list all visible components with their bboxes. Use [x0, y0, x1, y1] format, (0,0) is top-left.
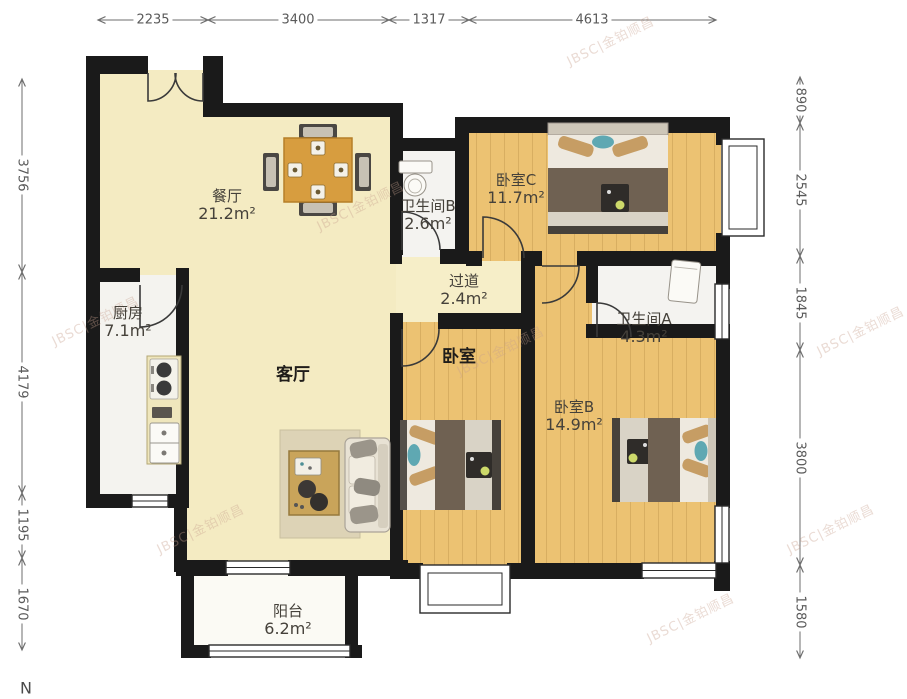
room-name: 餐厅 — [198, 188, 256, 205]
bed-middle-bedroom-icon — [400, 420, 501, 510]
room-label-balcony: 阳台 6.2m² — [264, 603, 311, 639]
dim-top-2: 3400 — [278, 13, 317, 28]
room-label-bathroom-b: 卫生间B 2.6m² — [400, 198, 455, 234]
room-label-bedroom: 卧室 — [442, 348, 476, 368]
balcony-window-icon — [209, 645, 350, 657]
room-area: 2.6m² — [400, 215, 455, 233]
washing-machine-icon — [668, 260, 701, 304]
dim-top-1: 2235 — [133, 13, 172, 28]
bedroom-b-side-window-icon — [715, 506, 729, 563]
bed-bedroom-c-icon — [548, 123, 668, 234]
room-area: 21.2m² — [198, 205, 256, 223]
dim-left-4: 1670 — [15, 584, 30, 623]
bedroom-b-bottom-window-icon — [642, 563, 716, 578]
room-name: 阳台 — [264, 603, 311, 620]
bed-bedroom-b-icon — [612, 418, 716, 502]
dim-right-1: 890 — [793, 85, 808, 116]
middle-bedroom-bay-window-icon — [420, 565, 510, 613]
room-name: 卫生间B — [400, 198, 455, 215]
bedroom-c-bay-window-icon — [722, 139, 764, 236]
room-name: 卧室 — [442, 348, 476, 368]
room-area: 4.3m² — [616, 328, 671, 346]
north-indicator: N — [20, 679, 32, 698]
room-label-living: 客厅 — [276, 366, 310, 386]
room-area: 2.4m² — [440, 290, 487, 308]
coffee-table-icon — [289, 451, 339, 515]
room-label-dining: 餐厅 21.2m² — [198, 188, 256, 224]
room-label-bedroom-b: 卧室B 14.9m² — [545, 399, 603, 435]
dim-right-3: 1845 — [793, 283, 808, 322]
room-label-kitchen: 厨房 7.1m² — [104, 305, 151, 341]
dim-top-4: 4613 — [572, 13, 611, 28]
room-name: 过道 — [440, 273, 487, 290]
balcony-door-window-icon — [226, 561, 290, 574]
kitchen-counter-icon — [147, 356, 181, 464]
room-name: 卧室B — [545, 399, 603, 416]
room-name: 卧室C — [487, 172, 545, 189]
dim-left-2: 4179 — [15, 362, 30, 401]
room-area: 14.9m² — [545, 416, 603, 434]
kitchen-window-icon — [132, 495, 168, 507]
room-name: 客厅 — [276, 366, 310, 386]
room-area: 11.7m² — [487, 189, 545, 207]
bathroom-a-window-icon — [715, 284, 729, 339]
dim-top-3: 1317 — [409, 13, 448, 28]
room-name: 厨房 — [104, 305, 151, 322]
sofa-icon — [345, 438, 390, 532]
dim-right-2: 2545 — [793, 170, 808, 209]
room-label-hallway: 过道 2.4m² — [440, 273, 487, 309]
floor-plan-page: 餐厅 21.2m² 卫生间B 2.6m² 卧室C 11.7m² 过道 2.4m²… — [0, 0, 907, 699]
dim-right-5: 1580 — [793, 592, 808, 631]
room-area: 7.1m² — [104, 322, 151, 340]
room-label-bedroom-c: 卧室C 11.7m² — [487, 172, 545, 208]
dim-left-3: 1195 — [15, 505, 30, 544]
dim-left-1: 3756 — [15, 155, 30, 194]
room-area: 6.2m² — [264, 620, 311, 638]
room-label-bathroom-a: 卫生间A 4.3m² — [616, 311, 671, 347]
dim-right-4: 3800 — [793, 438, 808, 477]
room-name: 卫生间A — [616, 311, 671, 328]
